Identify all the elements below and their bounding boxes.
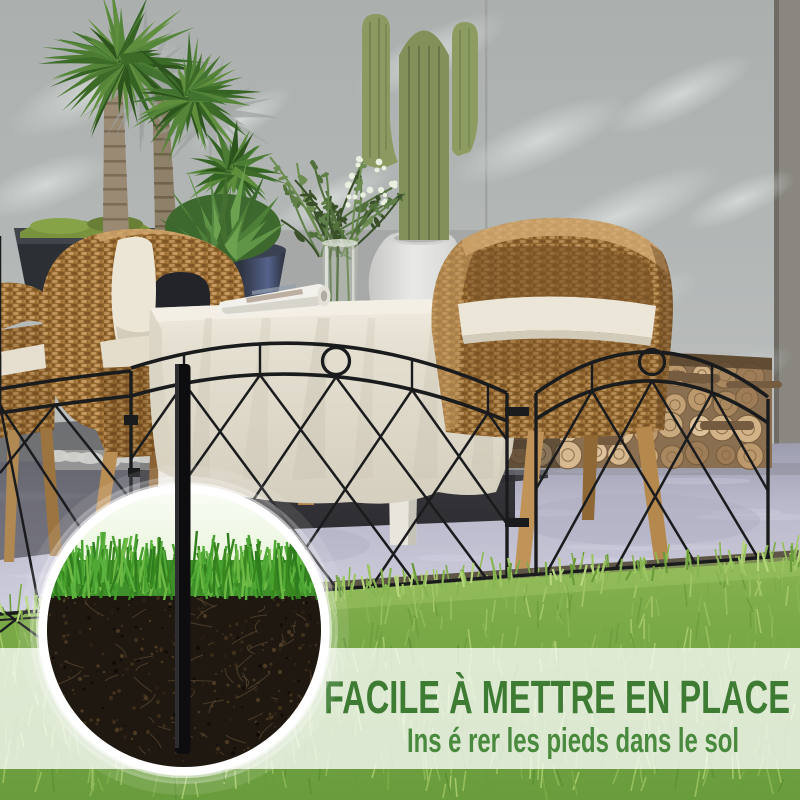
- svg-text:FACILE À METTRE EN PLACE: FACILE À METTRE EN PLACE: [324, 671, 790, 723]
- svg-text:Ins é rer les pieds dans le so: Ins é rer les pieds dans le sol: [407, 722, 739, 760]
